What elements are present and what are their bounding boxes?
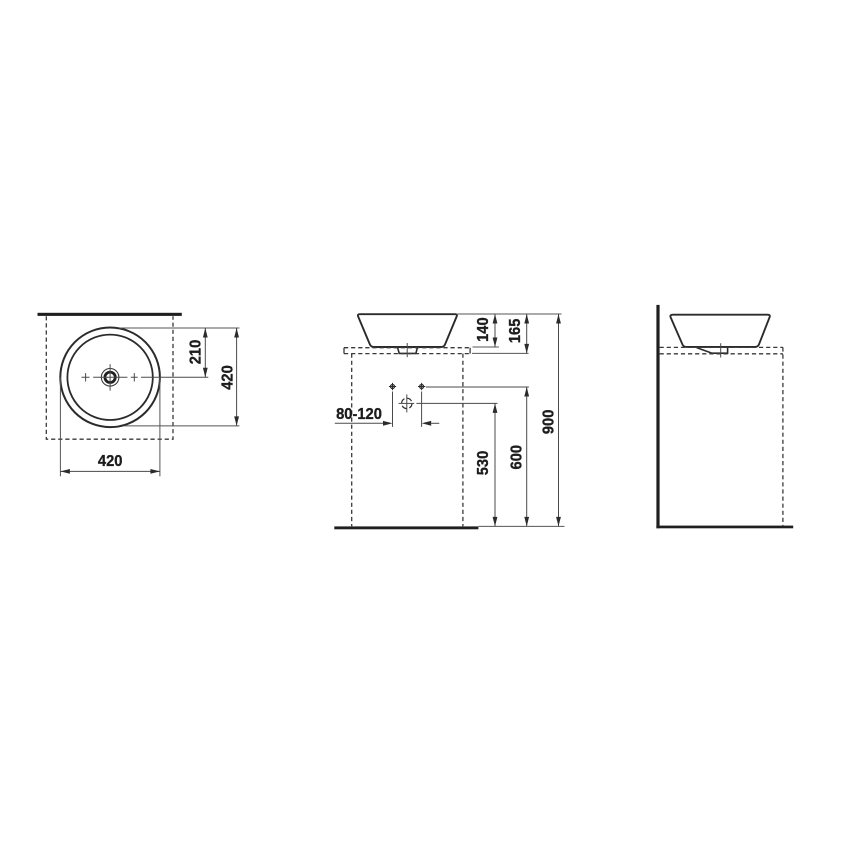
svg-text:900: 900 [540, 410, 558, 435]
svg-text:420: 420 [98, 452, 123, 470]
svg-text:210: 210 [187, 340, 205, 365]
svg-text:600: 600 [508, 445, 526, 470]
svg-text:530: 530 [474, 451, 492, 476]
svg-text:140: 140 [474, 317, 492, 342]
svg-text:80-120: 80-120 [336, 406, 382, 424]
svg-text:420: 420 [219, 365, 237, 390]
svg-text:165: 165 [507, 318, 525, 343]
